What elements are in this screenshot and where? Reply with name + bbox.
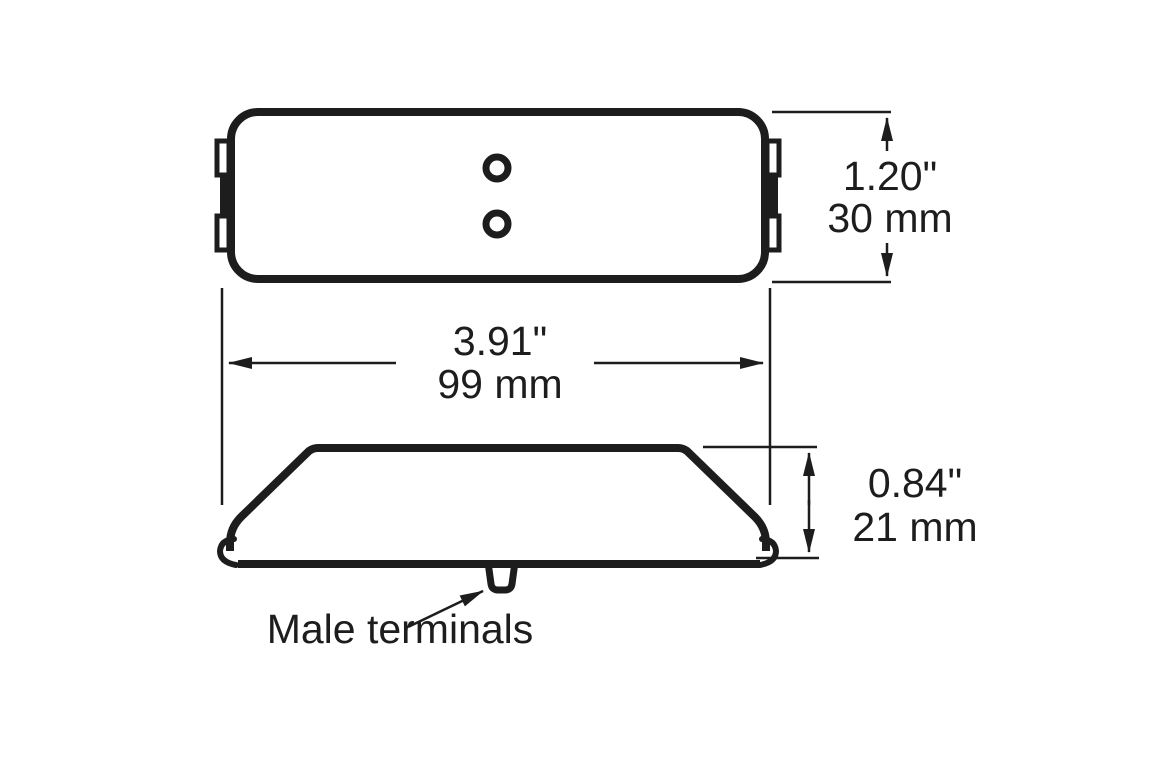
right-edge-step — [764, 176, 778, 214]
dimension-top-height-inches: 1.20" — [790, 155, 990, 197]
technical-drawing-page: 1.20" 30 mm 3.91" 99 mm 0.84" 21 mm Male… — [0, 0, 1160, 762]
dimension-text-top-height: 1.20" 30 mm — [790, 155, 990, 239]
right-tab-lower — [767, 216, 779, 250]
top-view-body-outline — [231, 112, 765, 279]
dimension-top-height-metric: 30 mm — [790, 197, 990, 239]
mounting-hole-lower — [486, 213, 508, 235]
dimension-side-height-inches: 0.84" — [815, 461, 1015, 505]
left-tab-upper — [217, 141, 229, 175]
side-view — [220, 448, 776, 590]
male-terminals-label: Male terminals — [250, 607, 550, 651]
left-edge-step — [220, 176, 233, 214]
dimension-text-side-height: 0.84" 21 mm — [815, 461, 1015, 549]
side-view-fill — [230, 448, 766, 564]
top-view — [217, 112, 779, 279]
dimension-width-metric: 99 mm — [400, 363, 600, 406]
dimension-side-height-metric: 21 mm — [815, 505, 1015, 549]
right-tab-upper — [767, 141, 779, 175]
mounting-hole-upper — [486, 157, 508, 179]
left-tab-lower — [217, 216, 229, 250]
dimension-text-width: 3.91" 99 mm — [400, 320, 600, 406]
dimension-width-inches: 3.91" — [400, 320, 600, 363]
